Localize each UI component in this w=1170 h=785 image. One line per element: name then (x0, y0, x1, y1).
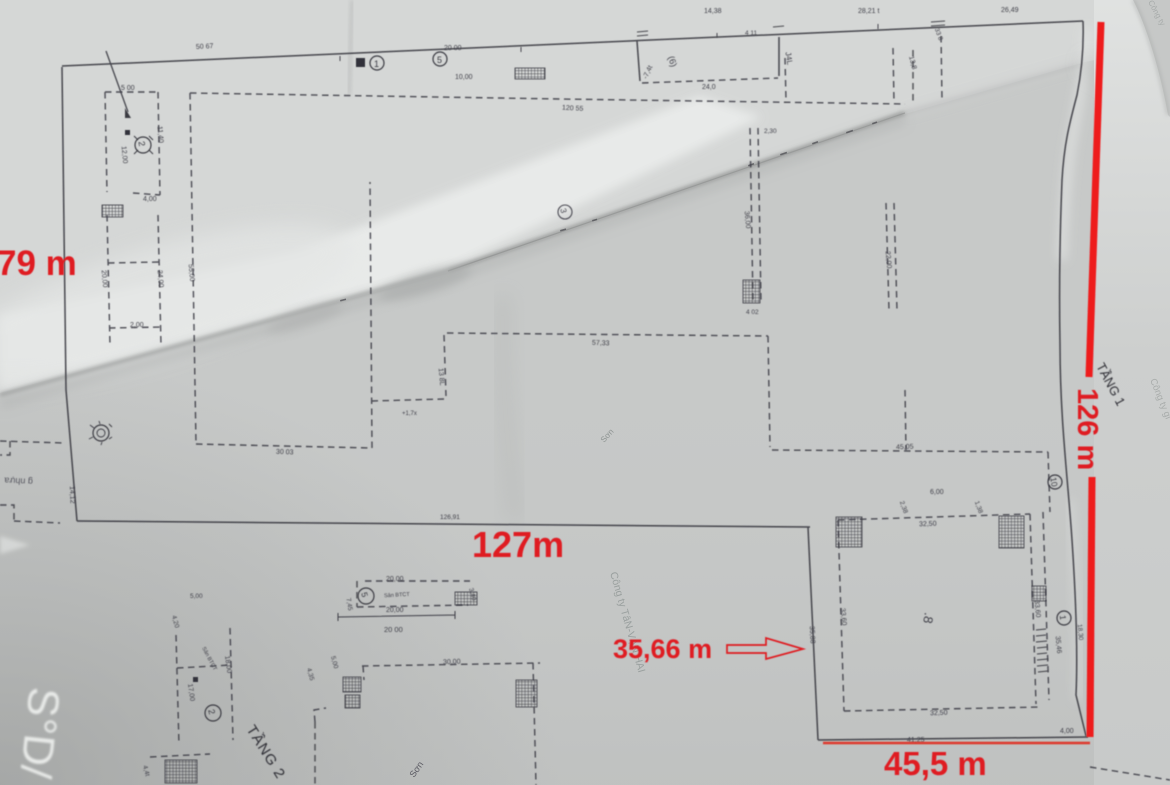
svg-text:57,33: 57,33 (592, 340, 610, 348)
svg-text:5: 5 (437, 55, 442, 65)
svg-text:50 67: 50 67 (196, 43, 214, 51)
svg-text:5,00: 5,00 (190, 593, 203, 600)
svg-text:2,30: 2,30 (764, 128, 777, 135)
svg-text:32,50: 32,50 (930, 710, 948, 718)
svg-text:6,00: 6,00 (930, 489, 944, 496)
svg-text:20,00: 20,00 (386, 576, 404, 583)
svg-text:14,38: 14,38 (704, 8, 722, 15)
svg-text:20 00: 20 00 (444, 45, 462, 52)
svg-text:35,66 m: 35,66 m (613, 634, 712, 664)
svg-text:S°D/: S°D/ (10, 685, 68, 781)
svg-text:32,50: 32,50 (919, 521, 937, 529)
svg-text:4 02: 4 02 (746, 309, 759, 316)
svg-text:14,12: 14,12 (68, 486, 76, 504)
svg-text:4,00: 4,00 (1060, 728, 1074, 735)
svg-text:35,88: 35,88 (808, 626, 816, 644)
svg-text:10,00: 10,00 (455, 74, 473, 81)
svg-text:11,40: 11,40 (156, 126, 164, 144)
svg-text:18,30: 18,30 (1076, 624, 1084, 641)
svg-text:+1,7x: +1,7x (402, 411, 417, 417)
svg-text:45,05: 45,05 (896, 444, 914, 452)
svg-text:g nhựa: g nhựa (4, 476, 33, 487)
svg-text:126,91: 126,91 (440, 514, 460, 521)
svg-text:126 m: 126 m (1071, 388, 1103, 470)
svg-text:26,49: 26,49 (1001, 7, 1019, 14)
svg-text:28,21 t: 28,21 t (858, 8, 879, 15)
svg-text:24,0: 24,0 (702, 84, 716, 91)
svg-text:10: 10 (1048, 476, 1060, 487)
svg-text:30,00: 30,00 (443, 659, 461, 667)
svg-text:20,00: 20,00 (386, 607, 404, 614)
svg-text:5 00: 5 00 (121, 85, 135, 92)
svg-text:20 00: 20 00 (384, 625, 403, 634)
svg-text:4,00: 4,00 (143, 196, 157, 203)
svg-text:79 m: 79 m (0, 244, 77, 283)
svg-text:127m: 127m (472, 524, 564, 565)
svg-text:30 03: 30 03 (276, 449, 294, 457)
svg-text:120 55: 120 55 (562, 105, 584, 113)
svg-text:45,5 m: 45,5 m (884, 745, 987, 782)
svg-text:1: 1 (374, 59, 379, 69)
svg-text:4 11: 4 11 (745, 30, 758, 37)
svg-text:2,00: 2,00 (130, 322, 144, 329)
